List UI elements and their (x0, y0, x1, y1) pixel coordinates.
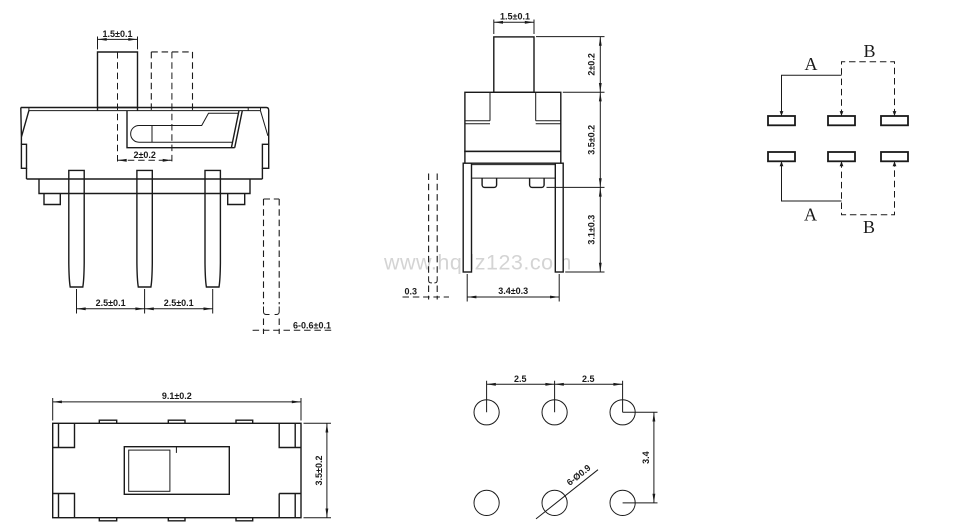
svg-text:1.5±0.1: 1.5±0.1 (500, 11, 530, 21)
svg-text:2.5±0.1: 2.5±0.1 (96, 298, 126, 308)
svg-text:2.5: 2.5 (582, 374, 595, 384)
svg-text:3.4±0.3: 3.4±0.3 (498, 286, 528, 296)
svg-text:A: A (805, 54, 818, 74)
svg-text:www.hqdz123.com: www.hqdz123.com (383, 251, 572, 275)
svg-text:2.5±0.1: 2.5±0.1 (164, 298, 194, 308)
svg-text:0.3: 0.3 (405, 287, 418, 297)
svg-text:3.1±0.3: 3.1±0.3 (587, 215, 597, 245)
svg-text:2.5: 2.5 (514, 374, 527, 384)
svg-text:6-0.6±0.1: 6-0.6±0.1 (293, 320, 331, 330)
svg-text:A: A (804, 204, 817, 224)
svg-text:3.4: 3.4 (641, 451, 651, 464)
svg-text:1.5±0.1: 1.5±0.1 (103, 29, 133, 39)
svg-text:9.1±0.2: 9.1±0.2 (162, 391, 192, 401)
svg-text:6-Ø0.9: 6-Ø0.9 (565, 463, 593, 488)
svg-text:3.5±0.2: 3.5±0.2 (314, 456, 324, 486)
svg-text:B: B (864, 41, 876, 61)
svg-text:2±0.2: 2±0.2 (587, 53, 597, 75)
svg-text:3.5±0.2: 3.5±0.2 (587, 125, 597, 155)
svg-text:B: B (863, 217, 875, 237)
svg-text:2±0.2: 2±0.2 (133, 150, 155, 160)
